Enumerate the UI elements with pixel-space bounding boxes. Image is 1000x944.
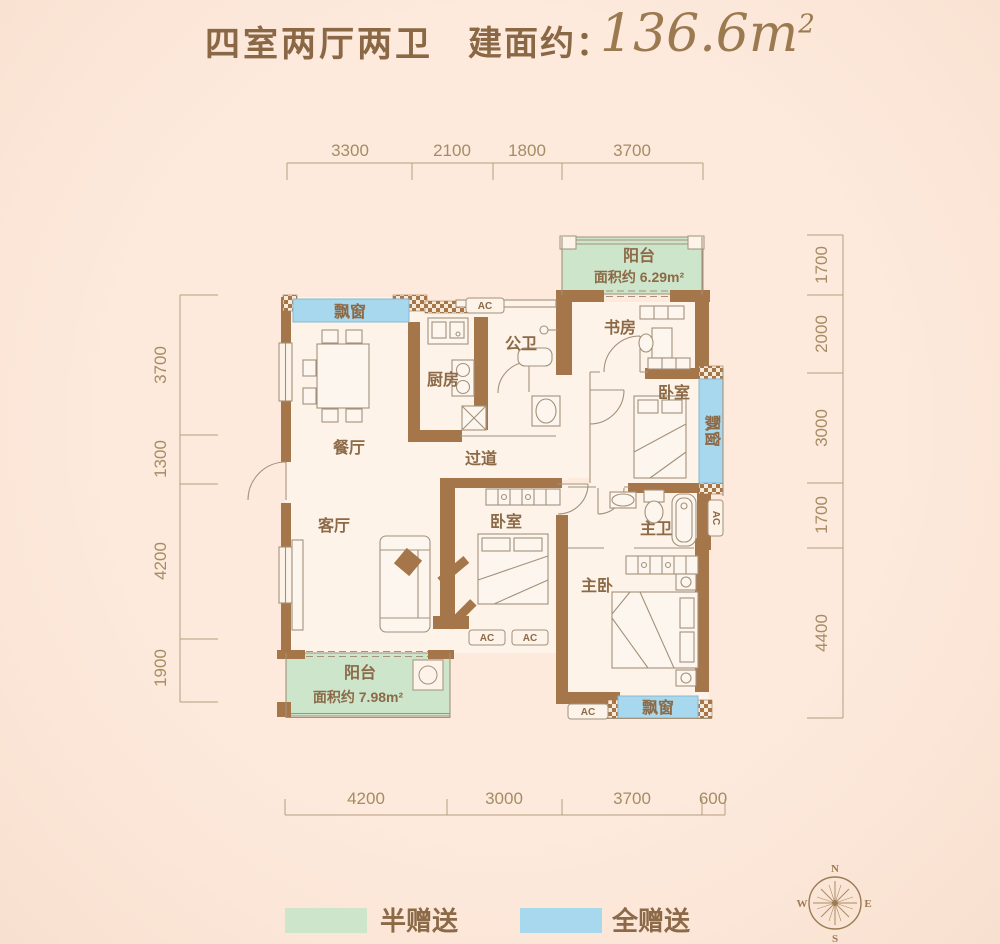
floorplan-page: 四室两厅两卫 建面约： 136.6m2 3300 2100 1800 3700 … <box>0 0 1000 944</box>
area-label: 建面约： <box>468 16 612 65</box>
dim-bottom-3: 3700 <box>613 789 651 808</box>
sofa <box>380 536 430 632</box>
compass-e: E <box>864 898 871 910</box>
ac-label-mid-1: AC <box>480 633 494 644</box>
title-row: 四室两厅两卫 建面约： 136.6m2 <box>0 10 1000 70</box>
dim-left-1: 3700 <box>151 346 170 384</box>
dim-left-4: 1900 <box>151 649 170 687</box>
layout-name: 四室两厅两卫 <box>205 16 433 67</box>
mid-bedroom-bed <box>478 534 548 604</box>
balcony-top <box>560 236 704 294</box>
label-public-bath: 公卫 <box>505 335 537 353</box>
label-bay-right: 飘窗 <box>703 415 722 447</box>
label-dining: 餐厅 <box>332 438 365 457</box>
legend-full-label: 全赠送 <box>611 906 690 936</box>
ac-label-top: AC <box>478 301 492 312</box>
label-bay-bottom: 飘窗 <box>642 698 674 717</box>
floorplan-svg: 3300 2100 1800 3700 4200 3000 3700 600 3… <box>0 0 1000 944</box>
dim-top-2: 2100 <box>433 141 471 160</box>
ac-label-bottom: AC <box>581 707 595 718</box>
master-wardrobe <box>626 556 698 574</box>
kitchen-cabinet <box>462 406 486 430</box>
label-bedroom-right: 卧室 <box>658 383 690 402</box>
label-bedroom-mid: 卧室 <box>490 512 522 531</box>
ac-label-mid-2: AC <box>523 633 537 644</box>
dim-right-5: 4400 <box>812 614 831 652</box>
balcony-bottom <box>286 653 450 718</box>
dim-right-3: 3000 <box>812 409 831 447</box>
label-balcony-bottom-area: 面积约 7.98m² <box>313 689 404 705</box>
dim-top-4: 3700 <box>613 141 651 160</box>
label-balcony-top: 阳台 <box>623 246 655 265</box>
dim-right-2: 2000 <box>812 315 831 353</box>
legend-half-swatch <box>285 908 367 933</box>
label-bay-top: 飘窗 <box>334 302 366 321</box>
mid-bedroom-wardrobe <box>486 489 560 505</box>
legend: 半赠送 全赠送 <box>285 906 690 936</box>
label-master-bedroom: 主卧 <box>581 576 613 595</box>
dim-top-1: 3300 <box>331 141 369 160</box>
area-number: 136.6 <box>600 4 749 64</box>
ac-label-right: AC <box>710 511 721 525</box>
entry-door <box>248 462 286 500</box>
area-sup: 2 <box>798 10 815 40</box>
compass-w: W <box>797 898 808 910</box>
compass-icon: N E S W <box>797 863 872 944</box>
label-living: 客厅 <box>318 516 350 535</box>
tv-cabinet <box>292 540 303 630</box>
compass-n: N <box>831 863 839 875</box>
label-master-bath: 主卫 <box>640 519 672 538</box>
water-heater <box>413 660 443 690</box>
label-corridor: 过道 <box>465 449 497 468</box>
dim-bottom-4: 600 <box>699 789 727 808</box>
label-balcony-top-area: 面积约 6.29m² <box>594 269 685 285</box>
dim-bottom-2: 3000 <box>485 789 523 808</box>
dim-top-3: 1800 <box>508 141 546 160</box>
dim-left-2: 1300 <box>151 440 170 478</box>
washbasin-public <box>532 396 560 426</box>
dim-left-3: 4200 <box>151 542 170 580</box>
compass-s: S <box>832 933 838 944</box>
dim-right-1: 1700 <box>812 246 831 284</box>
label-study: 书房 <box>604 318 636 337</box>
label-kitchen: 厨房 <box>427 370 459 389</box>
dim-bottom-1: 4200 <box>347 789 385 808</box>
dim-right-4: 1700 <box>812 496 831 534</box>
label-balcony-bottom: 阳台 <box>344 663 376 682</box>
area-unit: m <box>749 4 798 64</box>
legend-half-label: 半赠送 <box>380 906 458 936</box>
legend-full-swatch <box>520 908 602 933</box>
area-value: 136.6m2 <box>600 4 815 64</box>
kitchen-sink <box>428 318 468 344</box>
